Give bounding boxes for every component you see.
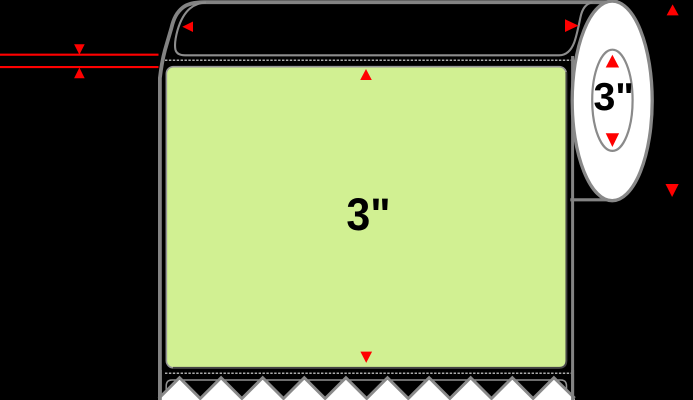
svg-text:3": 3": [593, 75, 634, 119]
svg-text:3": 3": [346, 190, 390, 240]
